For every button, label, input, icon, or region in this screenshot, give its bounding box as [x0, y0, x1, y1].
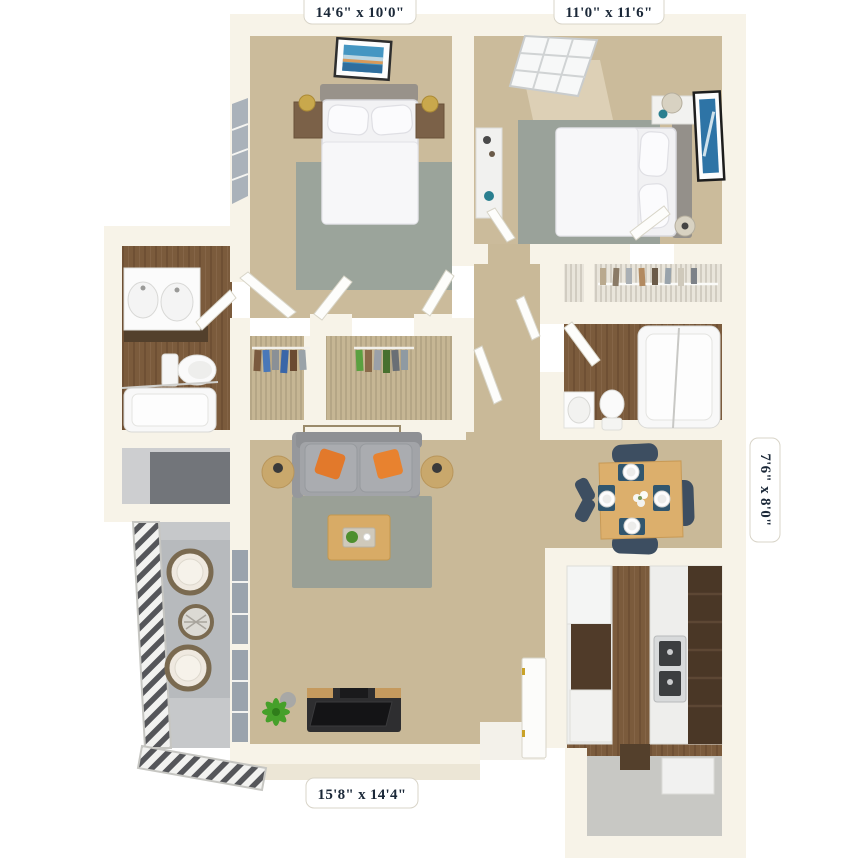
kitchen-left-run	[567, 566, 612, 744]
living-window-1	[232, 550, 248, 644]
balcony-chair-1	[169, 551, 211, 593]
front-door	[522, 658, 546, 758]
wall-art-1	[335, 38, 392, 80]
cabinet-left	[571, 624, 611, 690]
balcony-chair-2	[167, 647, 209, 689]
bathtub-2	[638, 326, 720, 428]
floor-plan-svg: 14'6" x 10'0" 11'0" x 11'6" 7'6" x 8'0" …	[0, 0, 860, 860]
balcony-table	[180, 606, 212, 638]
toilet-2	[600, 390, 624, 430]
label-bedroom-1: 14'6" x 10'0"	[304, 0, 416, 24]
label-dining: 7'6" x 8'0"	[750, 438, 780, 542]
utility-appliance	[662, 758, 714, 794]
vase	[484, 191, 494, 201]
label-bedroom-2-text: 11'0" x 11'6"	[565, 5, 652, 21]
kitchen-sink	[654, 636, 686, 702]
refrigerator	[567, 566, 611, 624]
floor-plan-image: 14'6" x 10'0" 11'0" x 11'6" 7'6" x 8'0" …	[0, 0, 860, 860]
cabinet-right	[688, 566, 722, 744]
wing-wall-left	[104, 226, 122, 522]
tv-console	[307, 688, 401, 732]
living-window-2	[232, 650, 248, 742]
entry	[662, 758, 714, 794]
label-bedroom-1-text: 14'6" x 10'0"	[316, 5, 405, 21]
kitchen-right-run	[650, 566, 722, 744]
lamp-1b	[422, 96, 438, 112]
wall-bedroom-divider	[452, 14, 474, 266]
label-dining-text: 7'6" x 8'0"	[757, 453, 773, 526]
bed-1	[320, 84, 418, 224]
bed-2	[556, 120, 692, 238]
wall-art-2	[694, 91, 725, 180]
wing-wall-top	[104, 226, 232, 246]
label-living-text: 15'8" x 14'4"	[318, 787, 407, 803]
sofa	[292, 426, 422, 498]
bathtub-1	[122, 382, 218, 432]
hallway-floor	[474, 244, 540, 440]
wall-entry-bottom	[565, 836, 746, 858]
dishwasher	[570, 690, 612, 742]
label-bedroom-2: 11'0" x 11'6"	[554, 0, 664, 24]
wall-kitchen-left	[545, 548, 567, 748]
lamp-1a	[299, 95, 315, 111]
wall-bottom	[230, 744, 480, 764]
label-living: 15'8" x 14'4"	[306, 778, 418, 808]
tv-screen	[310, 702, 392, 726]
toilet-1	[162, 354, 216, 386]
coffee-table	[328, 515, 390, 560]
